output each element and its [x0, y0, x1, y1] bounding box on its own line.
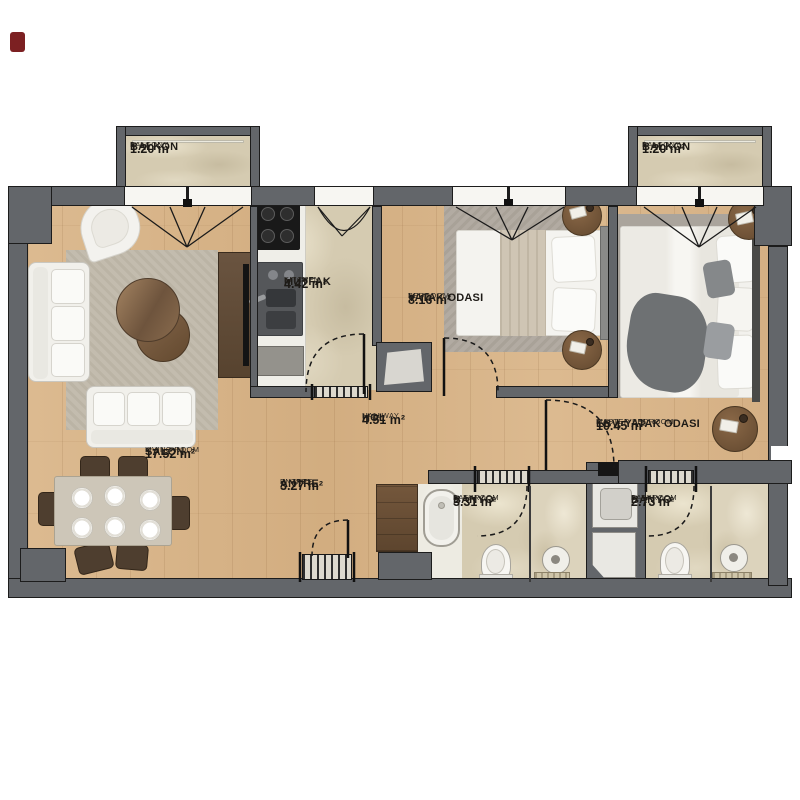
plan-linework: [0, 0, 800, 800]
kitchen-window-swing: [318, 207, 370, 236]
master-bedroom-door: [546, 400, 614, 470]
kitchen-door: [306, 334, 370, 400]
shower-partitions: [530, 486, 711, 582]
balcony-right-door-swing: [644, 207, 756, 247]
floor-plan: BALKON BALCONY 1.20 m BALKON BALCONY 1.2…: [0, 0, 800, 800]
bedroom-window-swing: [456, 207, 564, 240]
entrance-door: [300, 520, 354, 582]
bedroom-door: [444, 338, 498, 396]
balcony-left-door-swing: [132, 207, 243, 247]
bathroom2-door: [646, 466, 696, 536]
bathroom1-door: [475, 466, 529, 536]
